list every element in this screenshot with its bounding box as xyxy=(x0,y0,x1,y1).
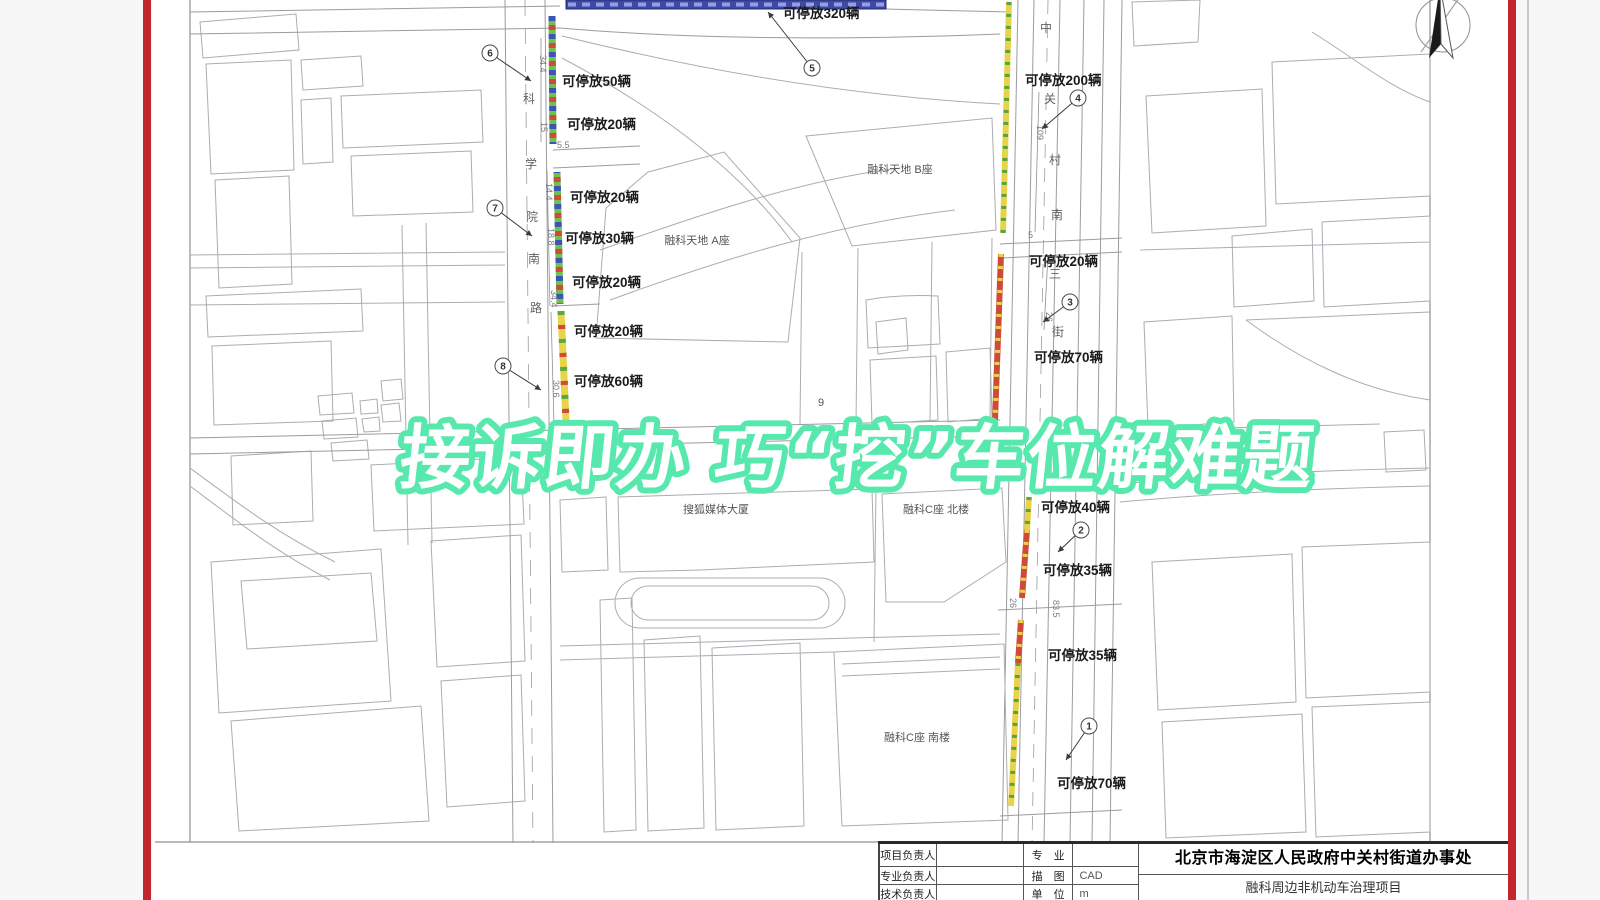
zone-marker-number: 7 xyxy=(492,204,498,215)
north-arrow-icon xyxy=(1416,0,1470,58)
zone-marker-number: 1 xyxy=(1086,722,1092,733)
map-labels-layer: 可停放320辆可停放50辆可停放20辆可停放20辆可停放30辆可停放20辆可停放… xyxy=(482,5,1127,791)
street-name-char: 关 xyxy=(1044,92,1056,106)
field-label: 描 图 xyxy=(1024,867,1074,884)
parking-count-label: 可停放35辆 xyxy=(1048,647,1118,663)
sheet-border-hairline xyxy=(1527,0,1529,900)
dimension-label: 26 xyxy=(1008,598,1018,608)
building-label: 融科天地 B座 xyxy=(867,162,932,176)
field-label: 单 位 xyxy=(1024,885,1074,900)
field-value: CAD xyxy=(1073,867,1139,884)
street-name-char: 科 xyxy=(523,92,535,106)
street-name-char: 街 xyxy=(1052,325,1064,339)
field-label: 专 业 xyxy=(1024,844,1074,866)
dimension-label: 5 xyxy=(1028,230,1033,240)
parking-count-label: 可停放200辆 xyxy=(1025,72,1102,88)
role-label: 专业负责人 xyxy=(880,867,937,884)
dimension-label: 34.4 xyxy=(538,55,548,73)
parking-strip-left-2 xyxy=(557,172,560,304)
site-plan-map: 可停放320辆可停放50辆可停放20辆可停放20辆可停放30辆可停放20辆可停放… xyxy=(0,0,1600,900)
organization-name: 北京市海淀区人民政府中关村街道办事处 xyxy=(1139,844,1508,875)
field-value xyxy=(1073,844,1139,866)
parking-count-label: 可停放35辆 xyxy=(1043,562,1113,578)
dimension-label: 30.6 xyxy=(551,380,561,398)
headline-text: 接诉即办 巧“挖”车位解难题 xyxy=(396,417,1319,499)
parking-count-label: 可停放30辆 xyxy=(565,230,635,246)
zone-marker-number: 8 xyxy=(500,362,506,373)
title-block: 项目负责人 专 业 专业负责人 描 图 CAD 技术负责人 单 位 m 北京市海… xyxy=(878,841,1508,900)
parking-count-label: 可停放20辆 xyxy=(570,189,640,205)
role-value xyxy=(937,844,1024,866)
parking-count-label: 可停放20辆 xyxy=(572,274,642,290)
parking-count-label: 可停放40辆 xyxy=(1041,499,1111,515)
dimension-label: 83.5 xyxy=(1051,600,1061,618)
title-block-org-cell: 北京市海淀区人民政府中关村街道办事处 融科周边非机动车治理项目 xyxy=(1139,844,1508,900)
parking-count-label: 可停放20辆 xyxy=(567,116,637,132)
parking-strip-right-3 xyxy=(1027,497,1029,530)
dimension-label: 14.4 xyxy=(544,183,554,201)
role-label: 技术负责人 xyxy=(880,885,937,900)
street-name-char: 中 xyxy=(1040,20,1052,35)
building-label: 9 xyxy=(818,397,824,409)
street-name-char: 南 xyxy=(1051,207,1063,222)
sheet-border-left xyxy=(143,0,151,900)
parking-count-label: 可停放320辆 xyxy=(783,5,860,21)
dimension-label: 15 xyxy=(539,122,549,132)
street-name-char: 村 xyxy=(1049,153,1061,167)
dimension-label: 18.8 xyxy=(546,228,556,246)
role-label: 项目负责人 xyxy=(880,844,937,866)
parking-count-label: 可停放50辆 xyxy=(562,73,632,89)
field-value: m xyxy=(1073,885,1139,900)
parking-count-label: 可停放70辆 xyxy=(1057,775,1127,791)
building-label: 融科C座 北楼 xyxy=(903,502,969,516)
sheet-border-right xyxy=(1508,0,1516,900)
parking-count-label: 可停放60辆 xyxy=(574,373,644,389)
parking-count-label: 可停放20辆 xyxy=(1029,253,1099,269)
role-value xyxy=(937,867,1024,884)
street-name-char: 院 xyxy=(526,210,538,224)
project-name: 融科周边非机动车治理项目 xyxy=(1139,875,1508,900)
zone-marker-number: 3 xyxy=(1067,298,1073,309)
street-name-char: 三 xyxy=(1049,267,1061,281)
street-name-char: 南 xyxy=(528,251,540,266)
parking-count-label: 可停放20辆 xyxy=(574,323,644,339)
dimension-label: 34.4 xyxy=(549,290,559,308)
street-name-char: 学 xyxy=(525,156,537,171)
title-block-grid: 项目负责人 专 业 专业负责人 描 图 CAD 技术负责人 单 位 m xyxy=(878,844,1139,900)
zone-marker-number: 2 xyxy=(1078,526,1084,537)
screenshot-root: 可停放320辆可停放50辆可停放20辆可停放20辆可停放30辆可停放20辆可停放… xyxy=(0,0,1600,900)
parking-count-label: 可停放70辆 xyxy=(1034,349,1104,365)
zone-marker-number: 4 xyxy=(1075,94,1081,105)
street-name-char: 路 xyxy=(530,300,542,315)
zone-marker-number: 5 xyxy=(809,64,815,75)
building-label: 融科天地 A座 xyxy=(664,233,729,247)
zone-marker-number: 6 xyxy=(487,49,493,60)
parking-strip-right-1 xyxy=(1003,2,1009,233)
building-label: 融科C座 南楼 xyxy=(884,730,950,744)
building-label: 搜狐媒体大厦 xyxy=(683,502,749,516)
role-value xyxy=(937,885,1024,900)
dimension-label: 5.5 xyxy=(557,140,570,150)
